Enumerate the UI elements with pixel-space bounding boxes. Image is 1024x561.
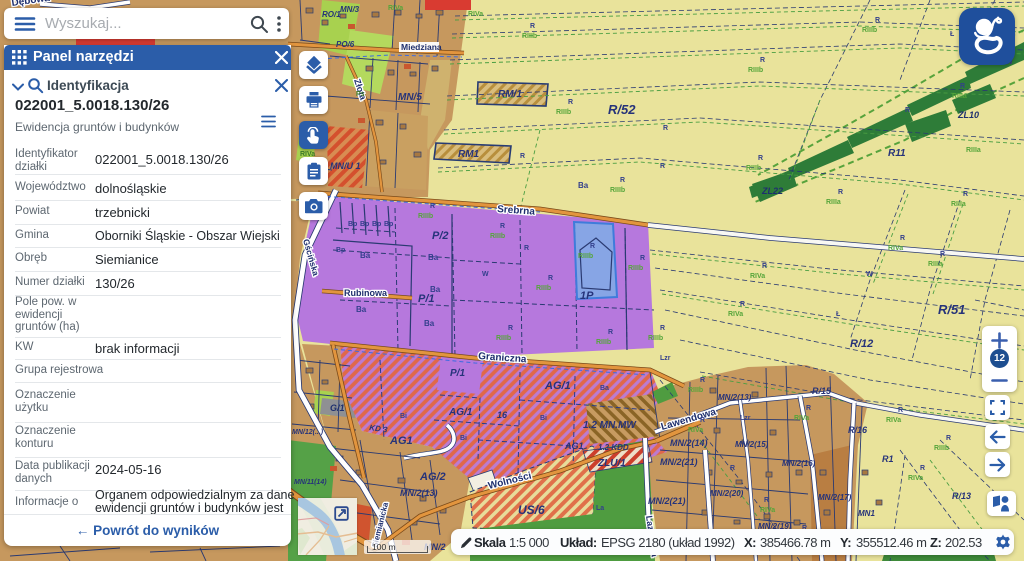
svg-text:R: R xyxy=(530,23,535,30)
svg-text:R11: R11 xyxy=(888,148,906,159)
svg-text:R/51: R/51 xyxy=(938,302,965,317)
svg-text:Ba: Ba xyxy=(578,181,589,190)
svg-text:Ł: Ł xyxy=(950,31,955,38)
svg-text:R: R xyxy=(905,107,910,114)
svg-text:MN/2(20): MN/2(20) xyxy=(710,489,744,498)
svg-text:MN/2(21): MN/2(21) xyxy=(648,496,686,506)
svg-text:R: R xyxy=(963,191,968,198)
svg-text:R: R xyxy=(898,407,903,414)
svg-text:Ba: Ba xyxy=(360,251,371,260)
svg-text:RIVa: RIVa xyxy=(888,245,903,252)
svg-text:Ps: Ps xyxy=(356,91,365,98)
svg-text:P/2: P/2 xyxy=(432,230,449,242)
svg-text:ZLU/1: ZLU/1 xyxy=(597,458,626,469)
svg-text:G/1: G/1 xyxy=(330,403,345,413)
svg-text:R: R xyxy=(620,177,625,184)
svg-text:AG/2: AG/2 xyxy=(419,471,446,483)
svg-text:MN/2(13): MN/2(13) xyxy=(400,488,438,498)
svg-text:16: 16 xyxy=(497,410,508,420)
svg-text:R: R xyxy=(508,325,513,332)
svg-text:R: R xyxy=(920,465,925,472)
svg-text:RM1: RM1 xyxy=(458,149,480,160)
svg-text:1.2 MN.MW: 1.2 MN.MW xyxy=(583,420,637,431)
svg-text:RIIIb: RIIIb xyxy=(748,67,763,74)
svg-text:AG/1: AG/1 xyxy=(544,380,571,392)
svg-text:La: La xyxy=(596,505,604,512)
svg-text:R: R xyxy=(660,325,665,332)
svg-text:Ba: Ba xyxy=(428,253,439,262)
svg-text:RIVa: RIVa xyxy=(750,273,765,280)
svg-text:RIIIb: RIIIb xyxy=(610,187,625,194)
svg-text:R: R xyxy=(838,189,843,196)
svg-text:R: R xyxy=(700,377,705,384)
svg-text:R: R xyxy=(764,497,769,504)
svg-text:RIVa: RIVa xyxy=(728,311,743,318)
svg-text:Lzr: Lzr xyxy=(740,415,751,422)
svg-text:MN/2(14): MN/2(14) xyxy=(670,438,708,448)
svg-text:US/6: US/6 xyxy=(518,503,545,517)
svg-text:R: R xyxy=(640,255,645,262)
svg-text:R/16: R/16 xyxy=(848,425,868,435)
svg-text:RIVa: RIVa xyxy=(688,427,703,434)
svg-text:R: R xyxy=(740,301,745,308)
svg-text:R: R xyxy=(524,245,529,252)
svg-text:AG/1: AG/1 xyxy=(448,407,473,418)
svg-text:Bp: Bp xyxy=(336,247,345,254)
svg-text:Ba: Ba xyxy=(430,285,441,294)
svg-text:RIVa: RIVa xyxy=(794,415,809,422)
svg-text:RIIIb: RIIIb xyxy=(648,335,663,342)
svg-text:Rubinowa: Rubinowa xyxy=(344,288,388,298)
svg-text:RIVa: RIVa xyxy=(760,507,775,514)
svg-text:RIIIa: RIIIa xyxy=(826,199,841,206)
svg-text:AG1: AG1 xyxy=(389,435,413,447)
svg-text:Bp: Bp xyxy=(384,221,393,228)
svg-text:R: R xyxy=(520,153,525,160)
svg-text:RIIIb: RIIIb xyxy=(522,33,537,40)
svg-text:R/15: R/15 xyxy=(812,386,832,396)
svg-text:R: R xyxy=(758,155,763,162)
svg-text:Bp: Bp xyxy=(372,221,381,228)
svg-text:RM/1: RM/1 xyxy=(498,89,522,100)
svg-text:Bp: Bp xyxy=(360,221,369,228)
svg-text:MN/12(...): MN/12(...) xyxy=(292,429,324,436)
svg-text:Ba: Ba xyxy=(600,385,609,392)
svg-text:RO/1: RO/1 xyxy=(322,10,341,19)
svg-text:Bi: Bi xyxy=(460,435,467,442)
svg-text:R: R xyxy=(590,243,595,250)
svg-text:P/1: P/1 xyxy=(450,368,465,379)
svg-text:R: R xyxy=(762,263,767,270)
svg-text:RIIIb: RIIIb xyxy=(578,253,593,260)
svg-text:R: R xyxy=(660,163,665,170)
svg-text:ZL22: ZL22 xyxy=(761,186,783,196)
svg-text:Bi: Bi xyxy=(540,415,547,422)
svg-text:MN1: MN1 xyxy=(858,509,875,518)
svg-text:MN/2(21): MN/2(21) xyxy=(660,457,698,467)
svg-text:RIIIa: RIIIa xyxy=(928,261,943,268)
svg-text:RIIIb: RIIIb xyxy=(556,109,571,116)
svg-text:MN/2(13): MN/2(13) xyxy=(718,393,752,402)
svg-text:Lzr: Lzr xyxy=(660,355,671,362)
svg-text:1P: 1P xyxy=(580,290,594,302)
svg-text:R: R xyxy=(548,275,553,282)
svg-text:W: W xyxy=(482,271,489,278)
svg-text:MN/3: MN/3 xyxy=(340,5,360,14)
svg-text:Ł: Ł xyxy=(836,311,841,318)
svg-text:MN/2(15): MN/2(15) xyxy=(735,440,769,449)
svg-text:RIIIb: RIIIb xyxy=(628,265,643,272)
svg-text:RIIIb: RIIIb xyxy=(596,339,611,346)
svg-text:R: R xyxy=(500,223,505,230)
svg-text:Miedziana: Miedziana xyxy=(401,42,442,52)
svg-text:R/52: R/52 xyxy=(608,102,636,117)
svg-text:RIVa: RIVa xyxy=(886,417,901,424)
svg-text:MN/11(14): MN/11(14) xyxy=(294,479,327,486)
svg-text:Ba: Ba xyxy=(356,305,367,314)
svg-text:AG1: AG1 xyxy=(564,441,584,451)
svg-text:R: R xyxy=(430,203,435,210)
svg-text:R: R xyxy=(806,405,811,412)
svg-text:R: R xyxy=(700,417,705,424)
svg-text:P/1: P/1 xyxy=(418,293,435,305)
svg-text:RIIIb: RIIIb xyxy=(418,213,433,220)
svg-text:RIIIb: RIIIb xyxy=(862,27,877,34)
svg-text:RIIIa: RIIIa xyxy=(951,201,966,208)
svg-text:Ba: Ba xyxy=(424,319,435,328)
svg-text:1.2 KDD: 1.2 KDD xyxy=(598,443,629,452)
svg-text:RIVa: RIVa xyxy=(468,11,483,18)
svg-text:MN/U 1: MN/U 1 xyxy=(330,161,361,171)
svg-text:MN/2(16): MN/2(16) xyxy=(782,459,816,468)
svg-text:R/13: R/13 xyxy=(952,491,971,501)
svg-text:R: R xyxy=(760,57,765,64)
svg-text:RIIIa: RIIIa xyxy=(952,93,967,100)
svg-text:RIIIa: RIIIa xyxy=(966,147,981,154)
svg-text:RIIIb: RIIIb xyxy=(536,285,551,292)
svg-text:R: R xyxy=(875,17,880,24)
svg-text:R: R xyxy=(940,251,945,258)
svg-text:MN/5: MN/5 xyxy=(398,92,422,103)
svg-text:Bp: Bp xyxy=(348,221,357,228)
svg-text:ZL10: ZL10 xyxy=(957,110,979,120)
svg-text:R/12: R/12 xyxy=(850,338,873,350)
svg-text:R: R xyxy=(960,83,965,90)
svg-text:R: R xyxy=(568,99,573,106)
svg-text:RIIIb: RIIIb xyxy=(934,445,949,452)
svg-text:RIVa: RIVa xyxy=(908,475,923,482)
svg-text:R: R xyxy=(900,235,905,242)
svg-text:R: R xyxy=(946,435,951,442)
svg-text:R: R xyxy=(608,329,613,336)
svg-text:Bi: Bi xyxy=(400,413,407,420)
svg-text:R: R xyxy=(663,125,668,132)
svg-text:RIIIb: RIIIb xyxy=(746,165,761,172)
svg-text:MN/2(17): MN/2(17) xyxy=(818,493,852,502)
svg-text:RIVa: RIVa xyxy=(388,5,403,12)
svg-text:RIIIb: RIIIb xyxy=(496,335,511,342)
svg-text:RIIIb: RIIIb xyxy=(688,387,703,394)
svg-text:RIIIb: RIIIb xyxy=(490,233,505,240)
svg-text:PO/6: PO/6 xyxy=(336,40,355,49)
svg-text:W: W xyxy=(866,271,873,278)
svg-text:R: R xyxy=(730,465,735,472)
svg-text:R1: R1 xyxy=(882,454,894,464)
